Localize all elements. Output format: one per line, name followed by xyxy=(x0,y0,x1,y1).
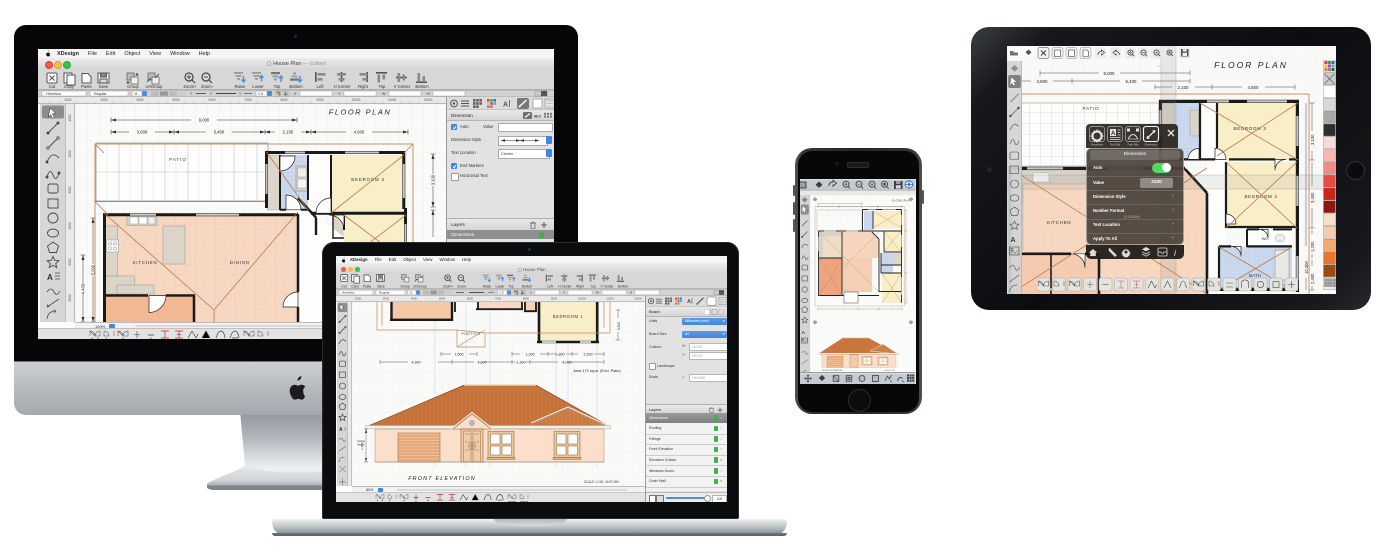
svg-text:i: i xyxy=(1174,248,1177,258)
svg-text:88.9: 88.9 xyxy=(534,114,541,118)
svg-text:Path Edit: Path Edit xyxy=(1128,143,1139,147)
svg-text:Dimension: Dimension xyxy=(1145,143,1158,147)
svg-text:A: A xyxy=(503,102,508,109)
svg-text:A: A xyxy=(1011,237,1016,244)
svg-text:A: A xyxy=(1111,131,1116,137)
svg-text:Text Edit: Text Edit xyxy=(1110,143,1121,147)
svg-text:Properties: Properties xyxy=(1091,143,1104,147)
svg-text:A: A xyxy=(687,299,691,305)
